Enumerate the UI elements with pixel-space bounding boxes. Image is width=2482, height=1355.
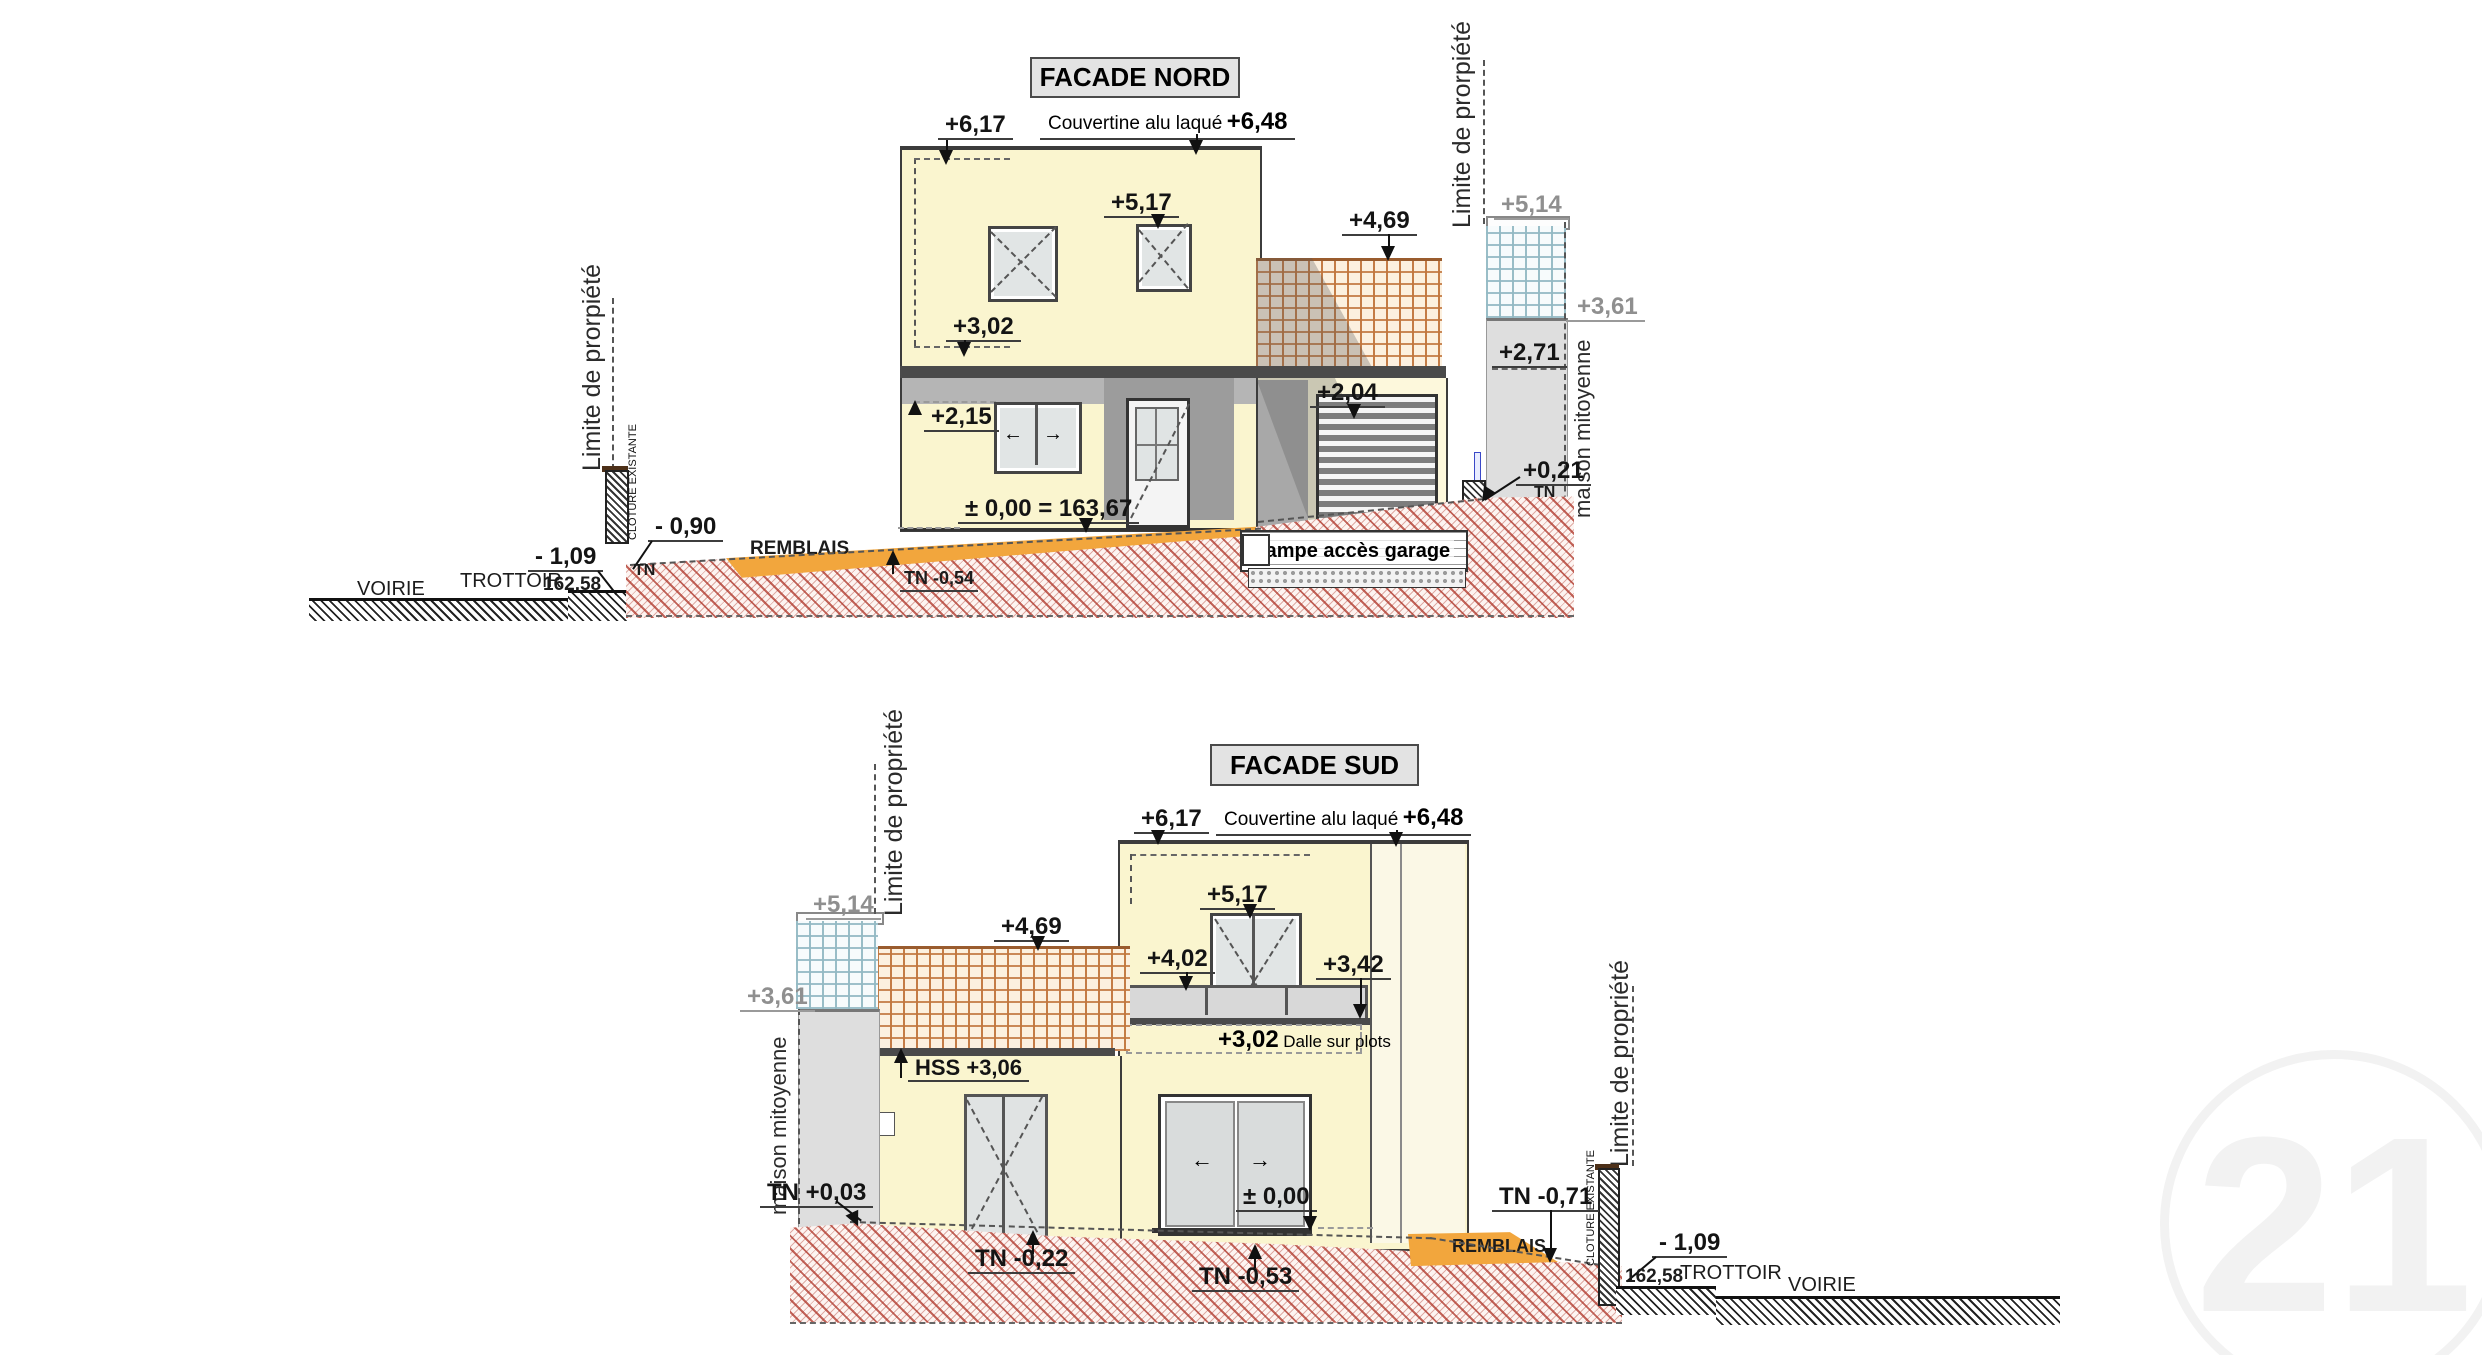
dim-tn-0-03: TN +0,03 xyxy=(760,1180,873,1208)
sud-property-limit-line-right xyxy=(1632,986,1634,1166)
dim-3-42: +3,42 xyxy=(1316,952,1391,980)
altitude-label-sud: 162,58 xyxy=(1625,1266,1683,1288)
dim-arrow xyxy=(1389,832,1403,847)
dim-arrow xyxy=(1243,904,1257,919)
sud-upper-door xyxy=(1210,913,1302,994)
sud-voirie-hatch xyxy=(1716,1296,2060,1325)
dim-arrow xyxy=(1031,936,1045,951)
rail-mullion xyxy=(1285,988,1288,1015)
dim-3-61-sud: +3,61 xyxy=(740,984,815,1012)
sud-bay-window: ← → xyxy=(1158,1094,1312,1236)
facade-sud-title: FACADE SUD xyxy=(1210,744,1419,786)
dim-6-17-sud: +6,17 xyxy=(1134,806,1209,834)
dim-tn-0-71: TN -0,71 xyxy=(1492,1184,1599,1212)
dim-zero-sud: ± 0,00 xyxy=(1236,1184,1317,1212)
sud-inner-dashed-v xyxy=(1130,854,1132,904)
dalle-sur-plots-label: Dalle sur plots xyxy=(1283,1032,1391,1051)
dim-5-17-sud: +5,17 xyxy=(1200,882,1275,910)
zero-level-dashed-sud xyxy=(1318,1227,1373,1229)
dim-3-02-sud: +3,02 xyxy=(1218,1026,1279,1053)
sud-trottoir-hatch xyxy=(1616,1286,1716,1315)
door-diagonal xyxy=(1249,918,1294,989)
limite-propriete-right-label-sud: Limite de propriété xyxy=(1606,982,1635,1167)
facade-sud-drawing: ← → maison mitoyenne Limite de propriété… xyxy=(0,0,2482,1355)
dim-minus-1-09-sud: - 1,09 xyxy=(1652,1230,1727,1258)
dim-couvertine-group-sud: Couvertine alu laqué +6,48 xyxy=(1216,804,1471,836)
sud-ground-bottom-dashed xyxy=(790,1322,1622,1324)
dim-hss-3-06: HSS +3,06 xyxy=(908,1056,1029,1082)
dim-arrow xyxy=(1543,1248,1557,1263)
trottoir-label-sud: TROTTOIR xyxy=(1680,1262,1782,1285)
dim-arrow xyxy=(1151,830,1165,845)
dim-tn-0-22: TN -0,22 xyxy=(968,1246,1075,1274)
dim-stem xyxy=(1550,1210,1552,1252)
sud-inner-dashed-h xyxy=(1130,854,1310,856)
dim-stem xyxy=(900,1060,902,1078)
dim-6-48-sud: +6,48 xyxy=(1403,804,1464,831)
dim-3-02-dalle-group: +3,02 Dalle sur plots xyxy=(1218,1026,1391,1054)
rail-mullion xyxy=(1205,988,1208,1015)
voirie-label-sud: VOIRIE xyxy=(1788,1274,1856,1297)
dim-arrow xyxy=(1353,1004,1367,1019)
dim-arrow xyxy=(1303,1216,1317,1231)
limite-propriete-left-label-sud: Limite de propriété xyxy=(880,766,909,916)
dim-stem xyxy=(1360,978,1362,1006)
sud-wing-joint-line xyxy=(1400,844,1402,1243)
slide-arrow-left: ← xyxy=(1191,1147,1213,1173)
sud-wing-tile-roof xyxy=(877,946,1130,1051)
dim-5-14-sud: +5,14 xyxy=(806,892,881,920)
dim-tn-0-53: TN -0,53 xyxy=(1192,1264,1299,1292)
couvertine-label-sud: Couvertine alu laqué xyxy=(1224,809,1398,830)
elevation-drawing-canvas: 21 ← → xyxy=(0,0,2482,1355)
dim-arrow xyxy=(1179,976,1193,991)
slide-arrow-right: → xyxy=(1249,1147,1271,1173)
door-mullion xyxy=(1252,916,1255,985)
level-dashed-3-61-sud xyxy=(786,1010,810,1012)
dim-4-02: +4,02 xyxy=(1140,946,1215,974)
